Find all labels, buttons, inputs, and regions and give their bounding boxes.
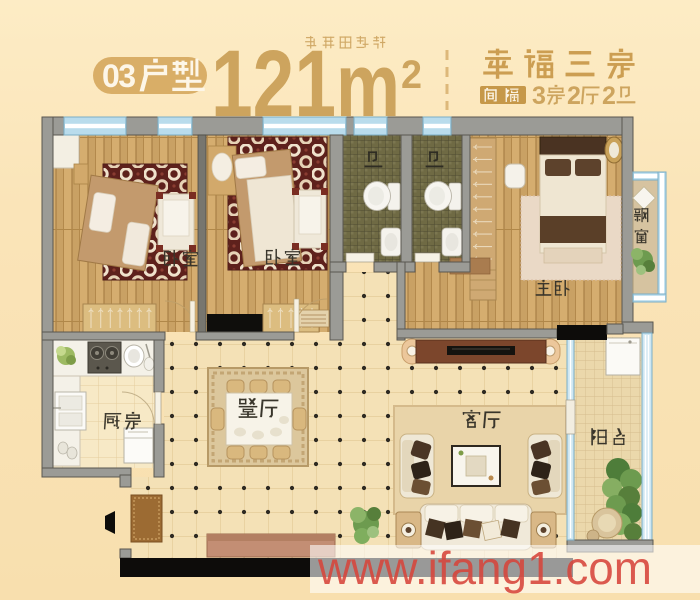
- svg-text:2: 2: [401, 53, 422, 97]
- svg-text:3: 3: [532, 82, 546, 110]
- svg-text:2: 2: [567, 82, 581, 110]
- svg-text:2: 2: [602, 82, 616, 110]
- svg-text:www.ifang1.com: www.ifang1.com: [317, 542, 652, 594]
- svg-text:03: 03: [102, 58, 136, 94]
